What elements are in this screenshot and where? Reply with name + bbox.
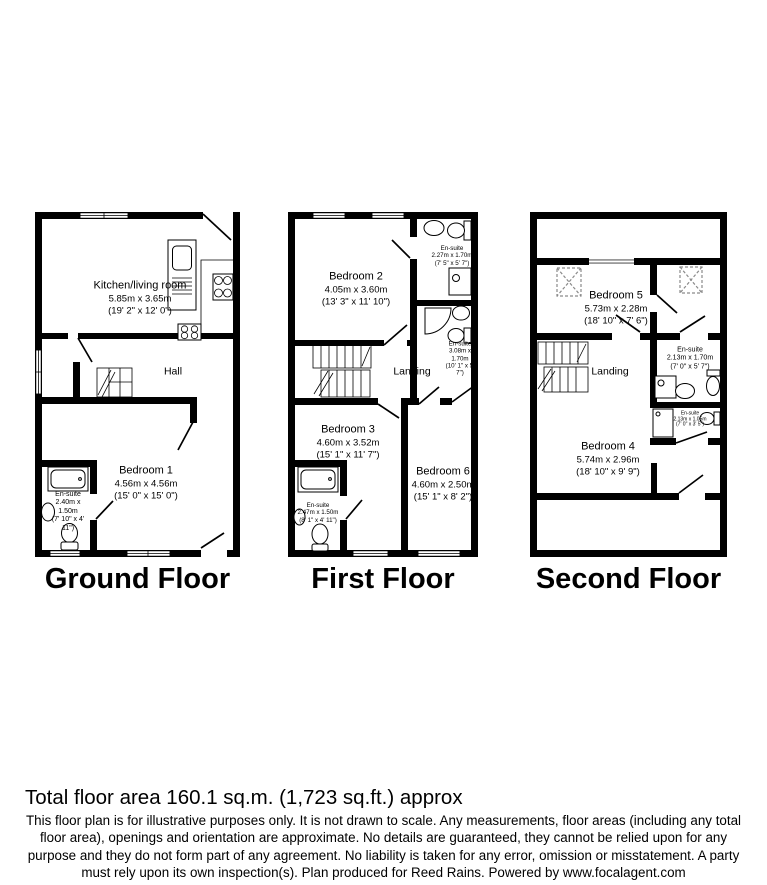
disclaimer-text: This floor plan is for illustrative purp… xyxy=(18,812,749,881)
room-size-imperial: (15' 0" x 15' 0") xyxy=(96,490,196,502)
room-label-ensuite-top: En-suite 2.27m x 1.70m (7' 5" x 5' 7") xyxy=(426,245,478,267)
total-floor-area: Total floor area 160.1 sq.m. (1,723 sq.f… xyxy=(25,786,463,810)
room-size-imperial: (7' 0" x 3' 5") xyxy=(673,423,707,429)
room-name: Bedroom 6 xyxy=(393,465,493,479)
room-label-ensuite-mid: En-suite 3.08m x 1.70m (10' 1" x 5' 7") xyxy=(442,341,478,378)
room-name: En-suite xyxy=(426,245,478,252)
room-name: En-suite xyxy=(46,491,90,499)
room-size-imperial: (7' 0" x 5' 7") xyxy=(659,363,721,371)
room-label-bedroom3: Bedroom 3 4.60m x 3.52m (15' 1" x 11' 7"… xyxy=(298,423,398,461)
room-name: En-suite xyxy=(442,341,478,348)
room-name: Bedroom 3 xyxy=(298,423,398,437)
ensuite-fixtures xyxy=(655,370,720,399)
room-size-imperial: (19' 2" x 12' 0") xyxy=(85,305,195,317)
room-size-imperial: (18' 10" x 9' 9") xyxy=(553,466,663,478)
room-label-ensuite: En-suite 2.40m x 1.50m (7' 10" x 4' 11") xyxy=(46,491,90,533)
room-size-metric: 5.85m x 3.65m xyxy=(85,293,195,305)
room-size-imperial: (18' 10" x 7' 6") xyxy=(561,315,671,327)
room-size-metric: 5.73m x 2.28m xyxy=(561,303,671,315)
room-label-kitchen: Kitchen/living room 5.85m x 3.65m (19' 2… xyxy=(85,279,195,317)
room-size-imperial: (15' 1" x 11' 7") xyxy=(298,449,398,461)
room-name: Landing xyxy=(393,365,430,378)
floor-title-second: Second Floor xyxy=(530,563,727,596)
first-floor-plan: Bedroom 2 4.05m x 3.60m (13' 3" x 11' 10… xyxy=(288,212,478,557)
room-size-metric: 2.40m x 1.50m xyxy=(46,499,90,516)
room-size-imperial: (13' 3" x 11' 10") xyxy=(306,296,406,308)
room-size-imperial: (7' 5" x 5' 7") xyxy=(426,260,478,267)
room-size-metric: 4.60m x 2.50m xyxy=(393,479,493,491)
room-size-metric: 4.60m x 3.52m xyxy=(298,437,398,449)
room-name: Bedroom 4 xyxy=(553,440,663,454)
room-size-imperial: (10' 1" x 5' 7") xyxy=(442,363,478,378)
room-name: Bedroom 5 xyxy=(561,289,671,303)
room-label-bedroom5: Bedroom 5 5.73m x 2.28m (18' 10" x 7' 6"… xyxy=(561,289,671,327)
room-name: Landing xyxy=(591,365,628,378)
room-name: En-suite xyxy=(659,346,721,354)
room-name: En-suite xyxy=(296,502,340,509)
ensuite-mid-fixtures xyxy=(425,306,471,343)
room-size-metric: 3.08m x 1.70m xyxy=(442,348,478,363)
room-size-metric: 4.05m x 3.60m xyxy=(306,284,406,296)
room-label-hall: Hall xyxy=(164,365,182,378)
room-size-imperial: (8' 1" x 4' 11") xyxy=(296,517,340,524)
room-size-imperial: (15' 1" x 8' 2") xyxy=(393,491,493,503)
room-size-metric: 5.74m x 2.96m xyxy=(553,454,663,466)
room-label-ensuite-small: En-suite 2.13m x 1.05m (7' 0" x 3' 5") xyxy=(673,412,707,429)
room-size-metric: 4.56m x 4.56m xyxy=(96,478,196,490)
floorplan-page: Kitchen/living room 5.85m x 3.65m (19' 2… xyxy=(0,0,767,885)
room-label-bedroom1: Bedroom 1 4.56m x 4.56m (15' 0" x 15' 0"… xyxy=(96,464,196,502)
room-size-metric: 2.27m x 1.70m xyxy=(426,252,478,259)
floor-title-first: First Floor xyxy=(288,563,478,596)
room-label-bedroom4: Bedroom 4 5.74m x 2.96m (18' 10" x 9' 9"… xyxy=(553,440,663,478)
second-floor-drawing xyxy=(530,212,727,557)
room-label-bedroom6: Bedroom 6 4.60m x 2.50m (15' 1" x 8' 2") xyxy=(393,465,493,503)
room-name: Bedroom 1 xyxy=(96,464,196,478)
staircase xyxy=(313,345,371,397)
room-label-ensuite: En-suite 2.13m x 1.70m (7' 0" x 5' 7") xyxy=(659,346,721,371)
room-label-landing: Landing xyxy=(393,365,430,378)
ground-floor-plan: Kitchen/living room 5.85m x 3.65m (19' 2… xyxy=(35,212,240,557)
room-name: Bedroom 2 xyxy=(306,270,406,284)
room-name: Hall xyxy=(164,365,182,378)
room-size-imperial: (7' 10" x 4' 11") xyxy=(46,516,90,533)
floor-title-ground: Ground Floor xyxy=(35,563,240,596)
walls xyxy=(530,212,727,557)
door-openings xyxy=(201,212,233,557)
room-label-bedroom2: Bedroom 2 4.05m x 3.60m (13' 3" x 11' 10… xyxy=(306,270,406,308)
room-size-metric: 2.47m x 1.50m xyxy=(296,509,340,516)
second-floor-plan: Bedroom 5 5.73m x 2.28m (18' 10" x 7' 6"… xyxy=(530,212,727,557)
staircase xyxy=(97,368,132,397)
staircase xyxy=(538,342,588,392)
room-size-metric: 2.13m x 1.70m xyxy=(659,355,721,363)
room-label-ensuite-bottom: En-suite 2.47m x 1.50m (8' 1" x 4' 11") xyxy=(296,502,340,524)
room-label-landing: Landing xyxy=(591,365,628,378)
room-name: Kitchen/living room xyxy=(85,279,195,293)
